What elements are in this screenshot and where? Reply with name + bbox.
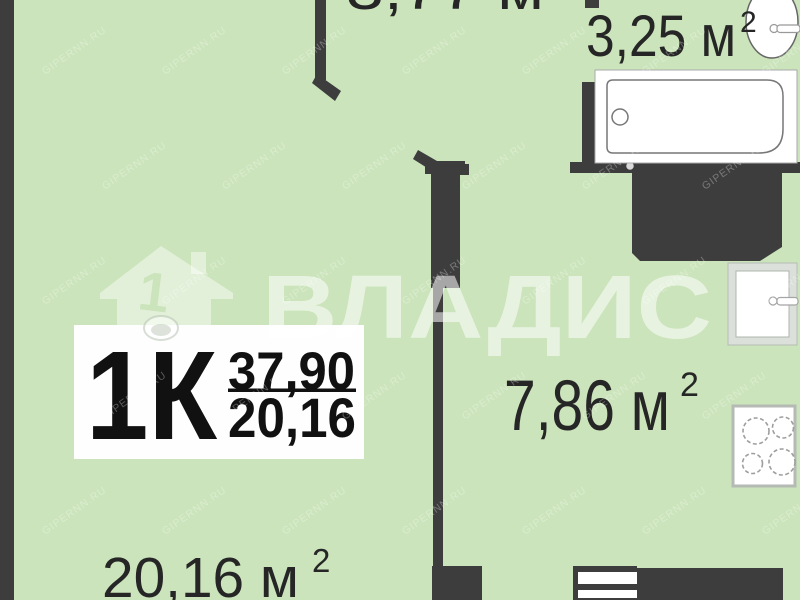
svg-text:3,77 м: 3,77 м bbox=[346, 0, 544, 22]
svg-text:1К: 1К bbox=[86, 325, 218, 466]
svg-text:2: 2 bbox=[312, 542, 330, 579]
svg-text:20,16 м: 20,16 м bbox=[102, 546, 299, 600]
svg-text:2: 2 bbox=[680, 366, 699, 404]
svg-text:2: 2 bbox=[740, 6, 757, 39]
